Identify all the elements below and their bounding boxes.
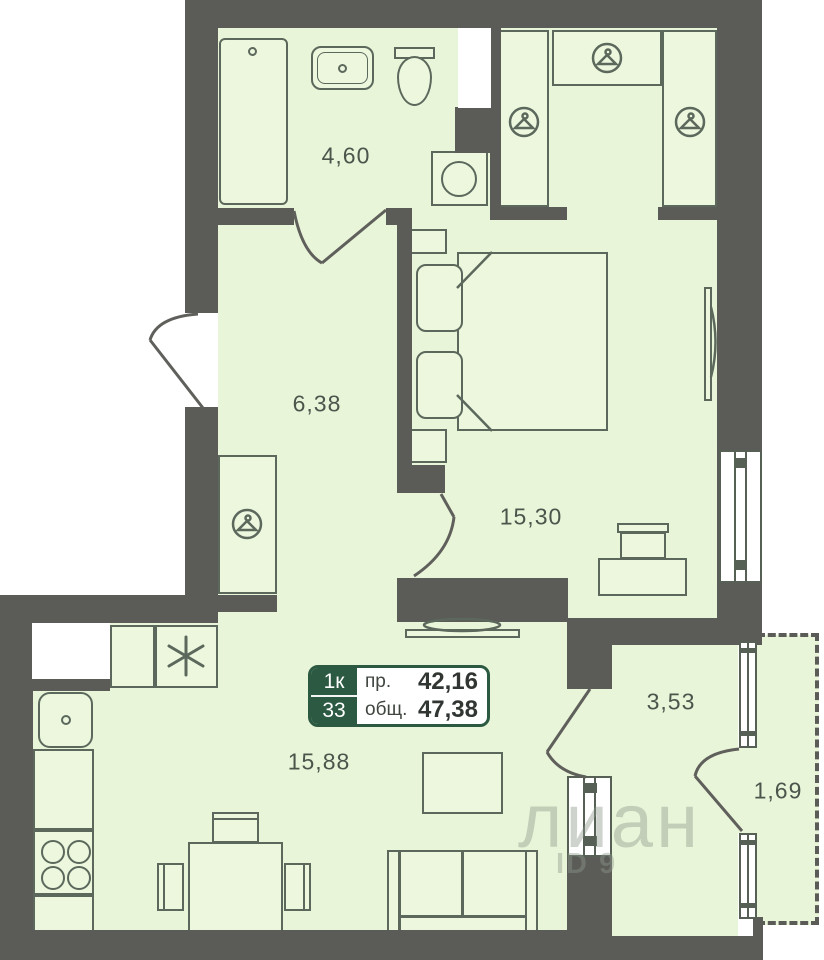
wall	[185, 0, 218, 313]
bedroom-window	[719, 450, 762, 583]
hallway-wardrobe	[218, 455, 277, 594]
wall	[0, 595, 33, 960]
kitchen-sink-faucet	[61, 715, 71, 725]
loggia-area-label: 3,53	[647, 689, 696, 716]
flat-info-badge: 1к 33 пр. 42,16 общ. 47,38	[308, 665, 490, 727]
total-area-label: общ.	[357, 699, 415, 721]
wall	[611, 936, 763, 960]
sofa	[387, 850, 538, 933]
nightstand-top	[406, 229, 447, 254]
wall	[217, 595, 277, 612]
dining-chair-right-back	[303, 863, 311, 911]
stove-burner	[67, 866, 91, 890]
rooms-count-badge: 1к	[311, 668, 357, 697]
watermark-listing-id: ID 9	[556, 848, 617, 881]
bed-pillow-2	[416, 351, 463, 419]
wall	[658, 207, 717, 220]
wall	[185, 0, 762, 28]
flat-info-badge-left: 1к 33	[311, 668, 357, 724]
living-area-value: 42,16	[415, 668, 487, 696]
bathroom-area-label: 4,60	[322, 143, 371, 170]
shaft-niche-kitchen	[32, 623, 110, 679]
wall	[397, 465, 445, 493]
tv-stand	[405, 629, 520, 638]
wardrobe-left	[498, 30, 549, 207]
kitchen-cabinet	[110, 625, 155, 688]
loggia-window-upper	[739, 641, 757, 748]
wall	[455, 107, 498, 153]
dining-chair-left-back	[157, 863, 165, 911]
wall	[567, 618, 612, 689]
wall	[185, 407, 218, 596]
wardrobe-top	[552, 30, 662, 86]
dining-chair-top-back	[212, 812, 259, 820]
stove-burner	[41, 840, 65, 864]
entrance-doorway	[185, 313, 218, 407]
dining-table	[188, 842, 283, 933]
refrigerator	[155, 625, 218, 688]
stove-burner	[41, 866, 65, 890]
kitchen-counter-upper	[33, 749, 94, 830]
hallway-area-label: 6,38	[293, 391, 342, 418]
balcony-area-label: 1,69	[754, 778, 803, 805]
washing-machine-drum	[441, 161, 477, 197]
wardrobe-right	[662, 30, 717, 207]
wall	[490, 207, 567, 220]
living-area-label: пр.	[357, 671, 415, 693]
floor-number-badge: 33	[311, 697, 357, 724]
wall	[397, 578, 568, 622]
wall	[397, 208, 412, 493]
coffee-table	[422, 752, 503, 814]
bedroom-area-label: 15,30	[500, 504, 563, 531]
bed	[457, 252, 608, 431]
total-area-value: 47,38	[415, 696, 487, 724]
loggia-window-lower	[739, 833, 757, 919]
wall	[32, 678, 110, 691]
wall	[217, 208, 294, 225]
bathtub-drain	[248, 47, 257, 56]
bathtub	[219, 38, 288, 205]
wall	[0, 930, 611, 960]
bathroom-sink-faucet	[338, 64, 347, 73]
desk	[598, 558, 687, 596]
flat-info-badge-right: пр. 42,16 общ. 47,38	[357, 668, 487, 724]
shaft-niche-bathroom	[458, 28, 491, 108]
desk-chair-seat	[620, 532, 666, 559]
living-kitchen-area-label: 15,88	[288, 749, 351, 776]
floor-plan: 4,60 6,38 15,30 15,88 3,53 1,69 лиан ID …	[0, 0, 824, 960]
bed-pillow-1	[416, 264, 463, 332]
tv-bedroom	[704, 287, 712, 401]
stove-burner	[67, 840, 91, 864]
kitchen-counter-lower	[33, 895, 94, 933]
